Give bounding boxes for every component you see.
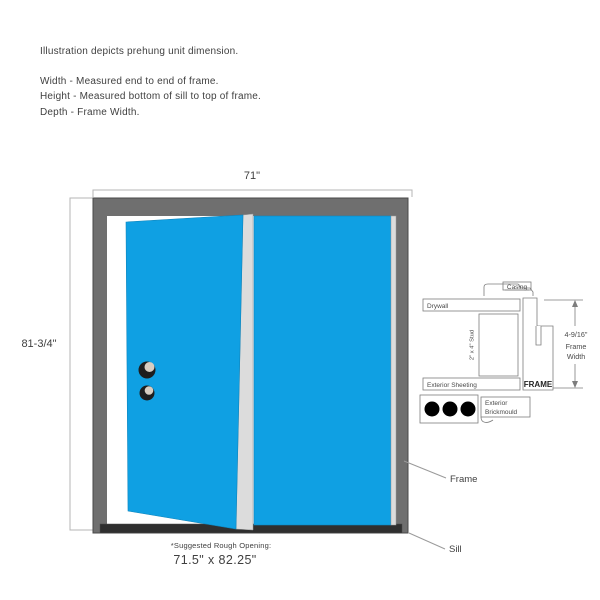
- sill-callout: Sill: [409, 533, 462, 555]
- rough-opening-note: *Suggested Rough Opening: 71.5" x 82.25": [171, 541, 272, 567]
- left-door-panel: [126, 214, 253, 530]
- width-dimension: 71": [93, 170, 412, 197]
- width-dimension-bracket: [93, 190, 412, 197]
- frame-width-dim-word2: Width: [567, 352, 585, 361]
- stud-section: [479, 314, 518, 376]
- frame-profile-kerf: [536, 326, 541, 345]
- stud-label: 2" x 4" Stud: [470, 330, 476, 360]
- drywall-label: Drywall: [427, 303, 449, 310]
- door-knob-highlight: [145, 362, 155, 372]
- height-dimension-label: 81-3/4": [21, 338, 56, 350]
- frame-section-label: FRAME: [524, 380, 553, 389]
- sill-leader-line: [409, 533, 445, 549]
- right-door-panel: [254, 216, 396, 525]
- brickmould-profile-curve: [481, 417, 493, 422]
- brickmould-circle: [425, 402, 440, 417]
- frame-leader-line: [404, 461, 446, 478]
- exterior-sheeting-label: Exterior Sheeting: [427, 382, 477, 389]
- frame-callout-label: Frame: [450, 474, 477, 485]
- rough-opening-value: 71.5" x 82.25": [173, 553, 256, 567]
- frame-width-dim-value: 4-9/16": [565, 330, 588, 339]
- frame-width-arrow-down: [572, 381, 578, 388]
- frame-width-arrow-up: [572, 300, 578, 307]
- frame-callout: Frame: [404, 461, 477, 485]
- door-deadbolt-highlight: [145, 386, 154, 395]
- diagram-svg: 71" 81-3/4" Frame: [0, 0, 600, 600]
- brickmould-label-line1: Exterior: [485, 400, 508, 407]
- rough-opening-title: *Suggested Rough Opening:: [171, 541, 272, 550]
- brickmould-label-line2: Brickmould: [485, 409, 518, 416]
- sill-callout-label: Sill: [449, 544, 462, 555]
- cross-section-detail: Casing Drywall 2" x 4" Stud Exterior She…: [420, 282, 588, 423]
- height-dimension: 81-3/4": [21, 198, 97, 530]
- brickmould-circle: [461, 402, 476, 417]
- right-door-slab: [254, 216, 391, 525]
- right-door-weatherstrip: [391, 216, 396, 525]
- brickmould-circle: [443, 402, 458, 417]
- width-dimension-label: 71": [244, 170, 260, 182]
- frame-width-dim-word1: Frame: [566, 342, 587, 351]
- door-illustration: Illustration depicts prehung unit dimens…: [0, 0, 600, 600]
